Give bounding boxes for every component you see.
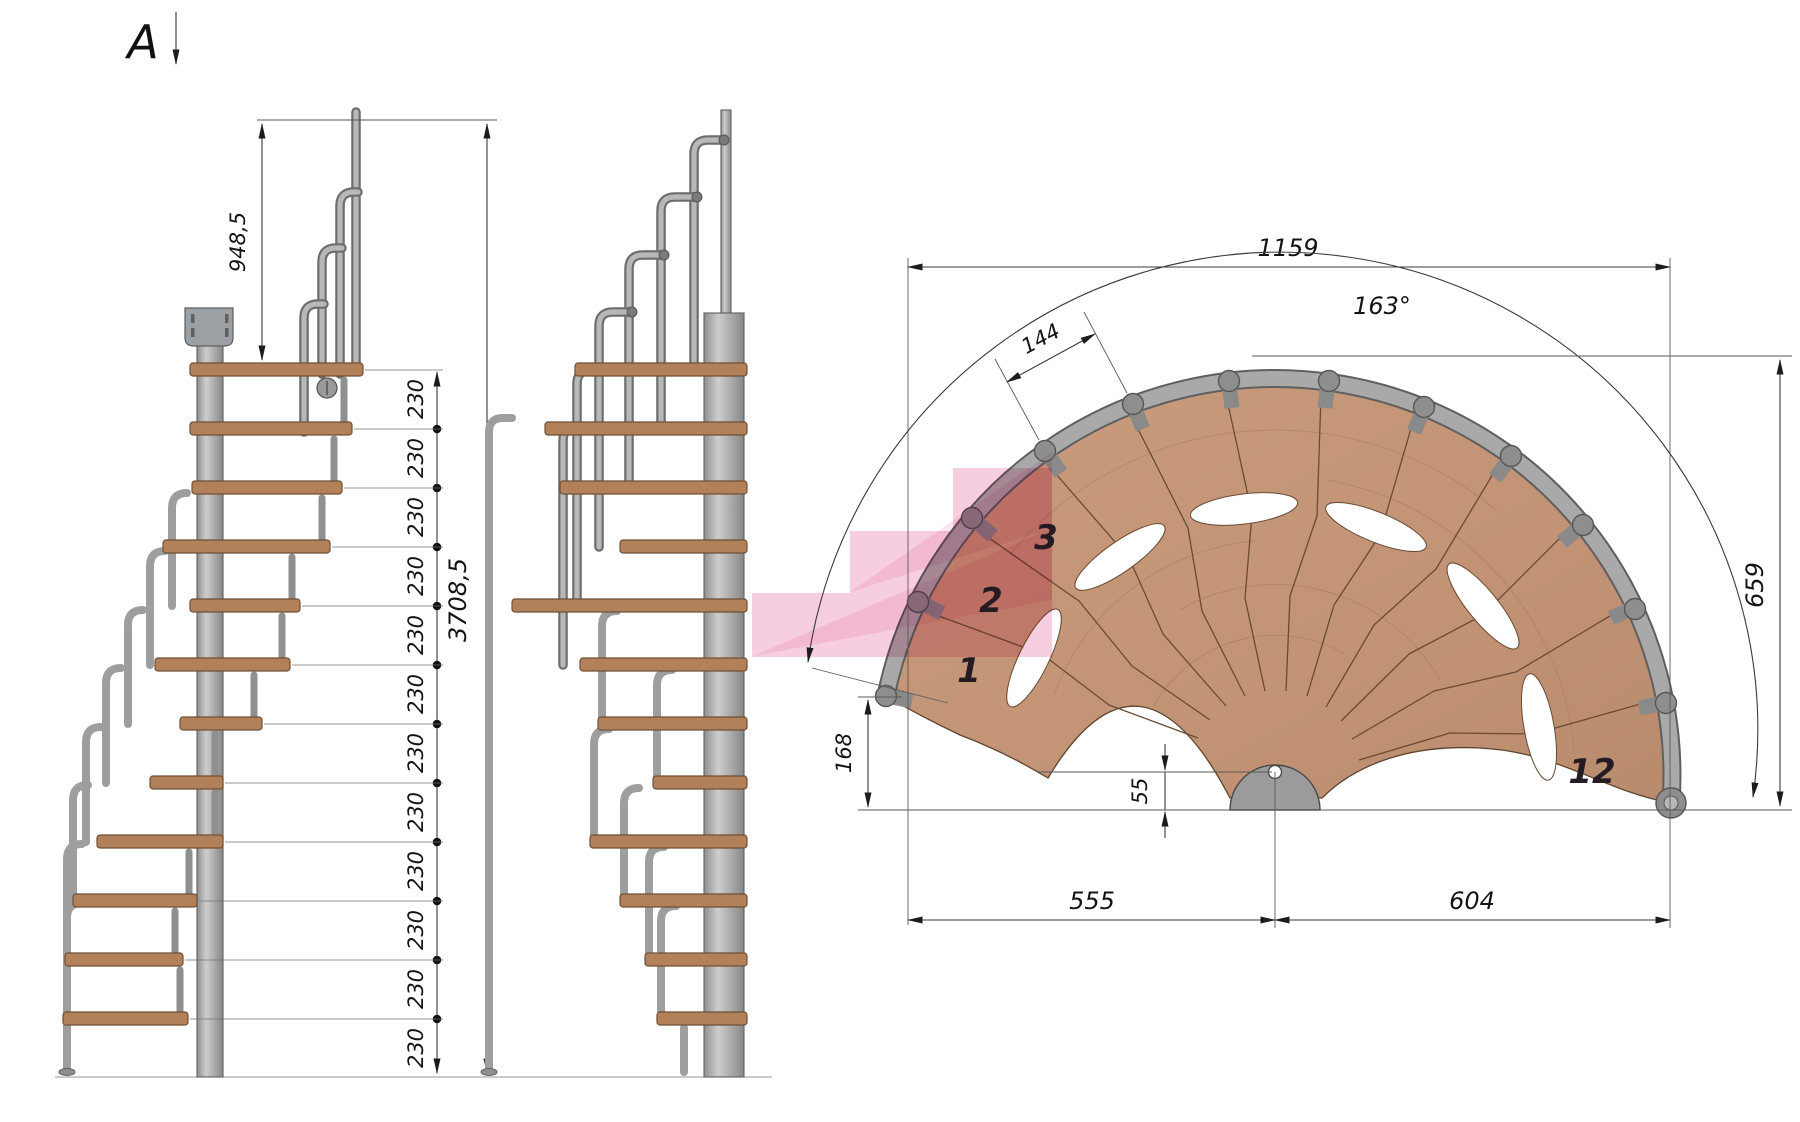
rise-label: 230 (404, 556, 428, 596)
dim-label-angle: 163° (1353, 292, 1411, 320)
rise-label: 230 (404, 497, 428, 537)
dim-label-span-left: 555 (1069, 887, 1115, 915)
dim-label-handrail-height: 948,5 (226, 212, 250, 272)
dim-label-depth-right: 659 (1741, 562, 1769, 608)
dim-label-pole-offset: 55 (1128, 778, 1152, 805)
rotated-side-view (481, 110, 747, 1077)
step-number-2: 2 (979, 581, 1003, 621)
rise-label: 230 (404, 615, 428, 655)
rise-label: 230 (404, 1028, 428, 1068)
ext-144-a (995, 359, 1039, 440)
rise-label: 230 (404, 969, 428, 1009)
rise-label: 230 (404, 851, 428, 891)
dim-label-tread-width: 144 (1017, 319, 1064, 359)
step-number-3: 3 (1034, 518, 1058, 558)
staircase-technical-drawing: A (0, 0, 1800, 1122)
rise-label: 230 (404, 733, 428, 773)
front-balusters (481, 418, 684, 1076)
rise-label: 230 (404, 674, 428, 714)
rise-labels: 230 230 230 230 230 230 230 230 230 230 … (404, 379, 428, 1068)
ext-144-b (1084, 312, 1127, 393)
rise-label: 230 (404, 438, 428, 478)
dim-label-total-height: 3708,5 (444, 558, 472, 642)
dim-label-span-right: 604 (1449, 887, 1495, 915)
wall-bracket (185, 308, 233, 346)
dim-label-overall-width: 1159 (1257, 234, 1318, 262)
rise-label: 230 (404, 379, 428, 419)
plan-view: 1 2 3 12 (752, 371, 1686, 819)
drawing-canvas: A (0, 0, 1800, 1122)
highlight-overlay (752, 452, 1052, 657)
step-number-12: 12 (1568, 752, 1615, 792)
dim-label-entry-offset: 168 (832, 733, 856, 773)
center-column (197, 344, 223, 1077)
view-letter-label: A (124, 15, 158, 69)
step-number-1: 1 (957, 651, 981, 691)
rise-label: 230 (404, 792, 428, 832)
rise-label: 230 (404, 910, 428, 950)
section-view-label: A (124, 12, 176, 69)
